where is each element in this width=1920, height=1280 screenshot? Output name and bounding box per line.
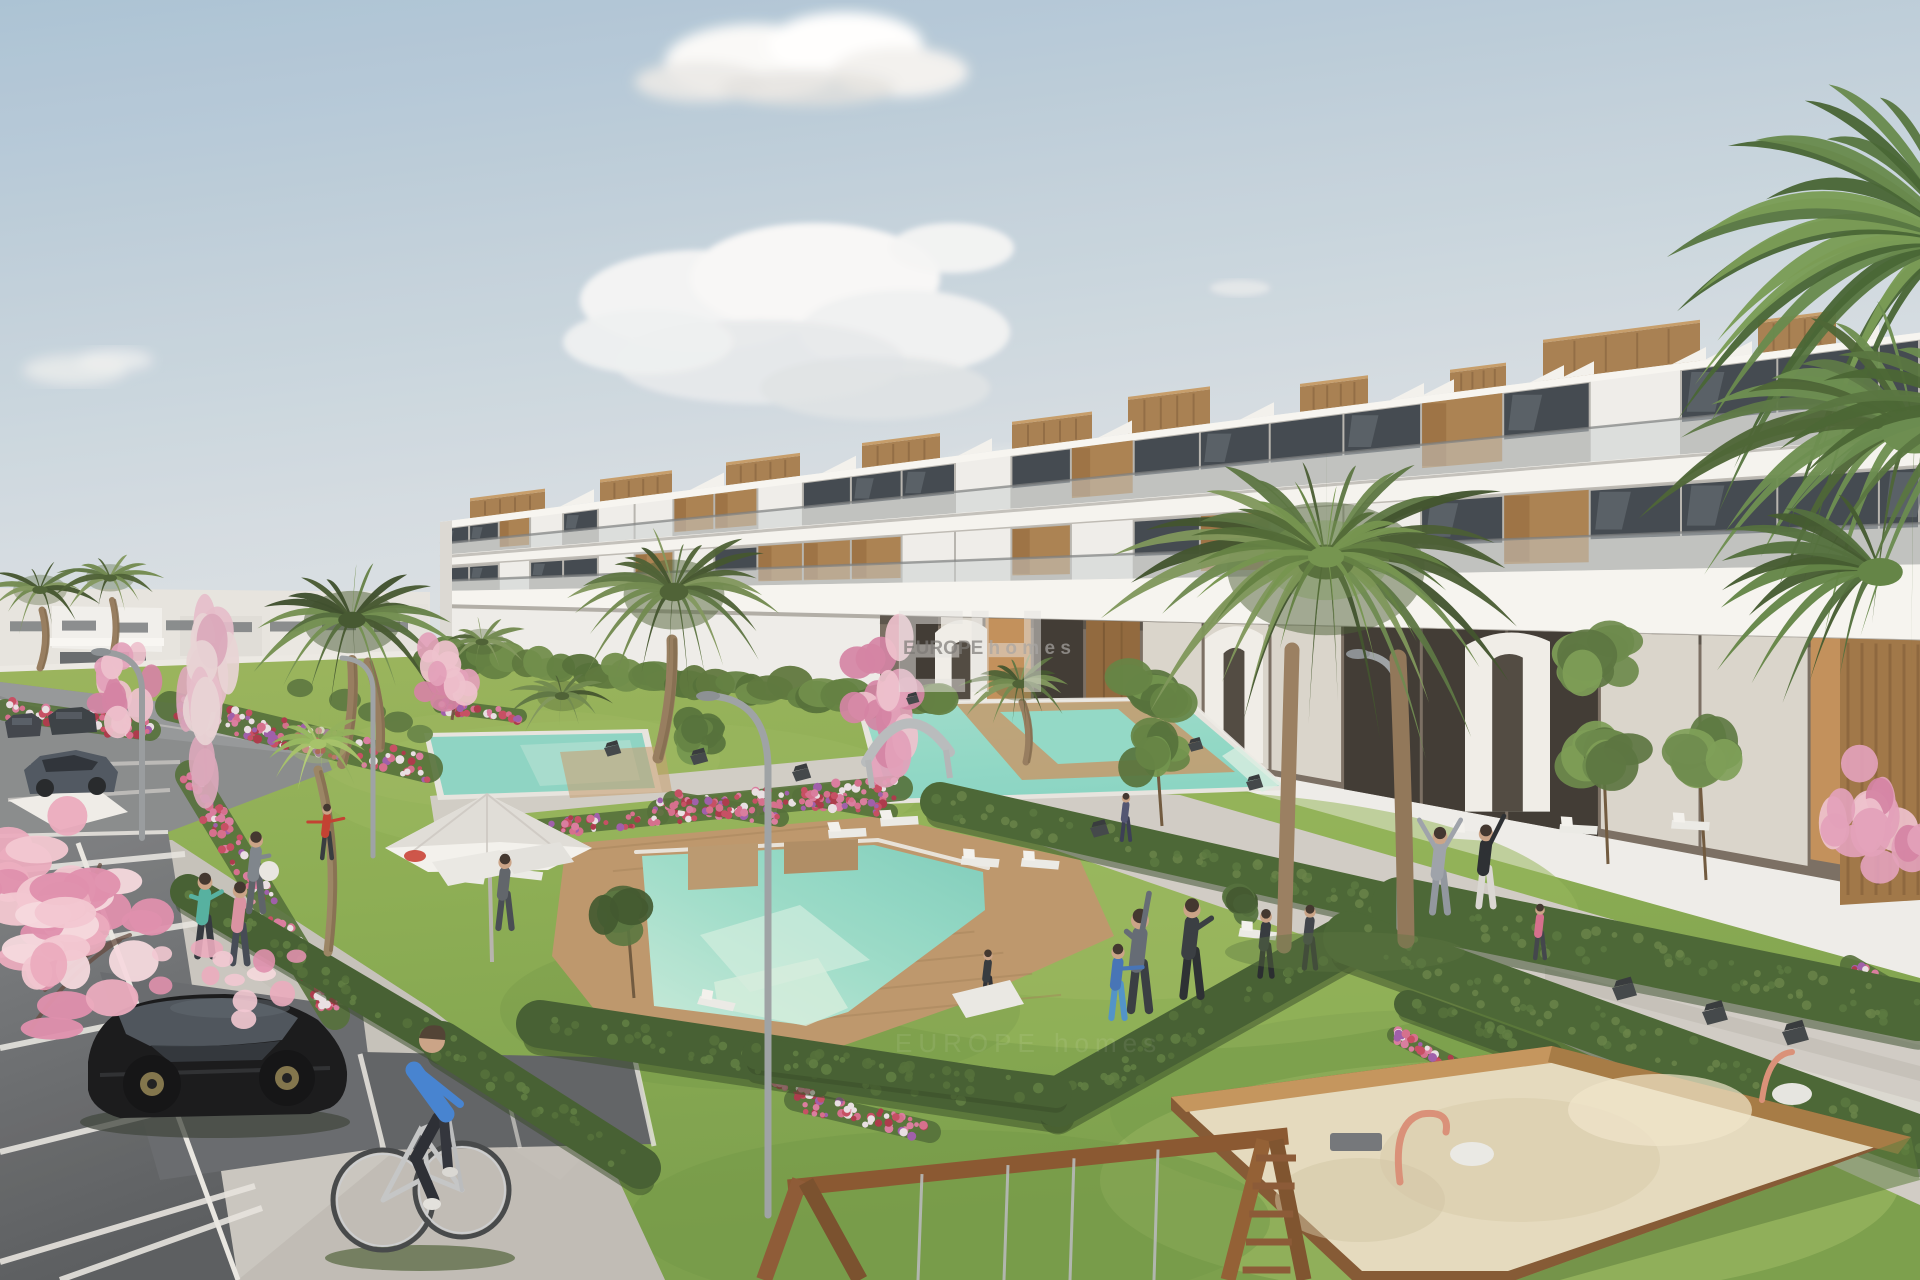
svg-text:EUROPE h o m e s: EUROPE h o m e s — [903, 638, 1071, 659]
svg-text:EUROPE homes: EUROPE homes — [895, 1028, 1162, 1058]
